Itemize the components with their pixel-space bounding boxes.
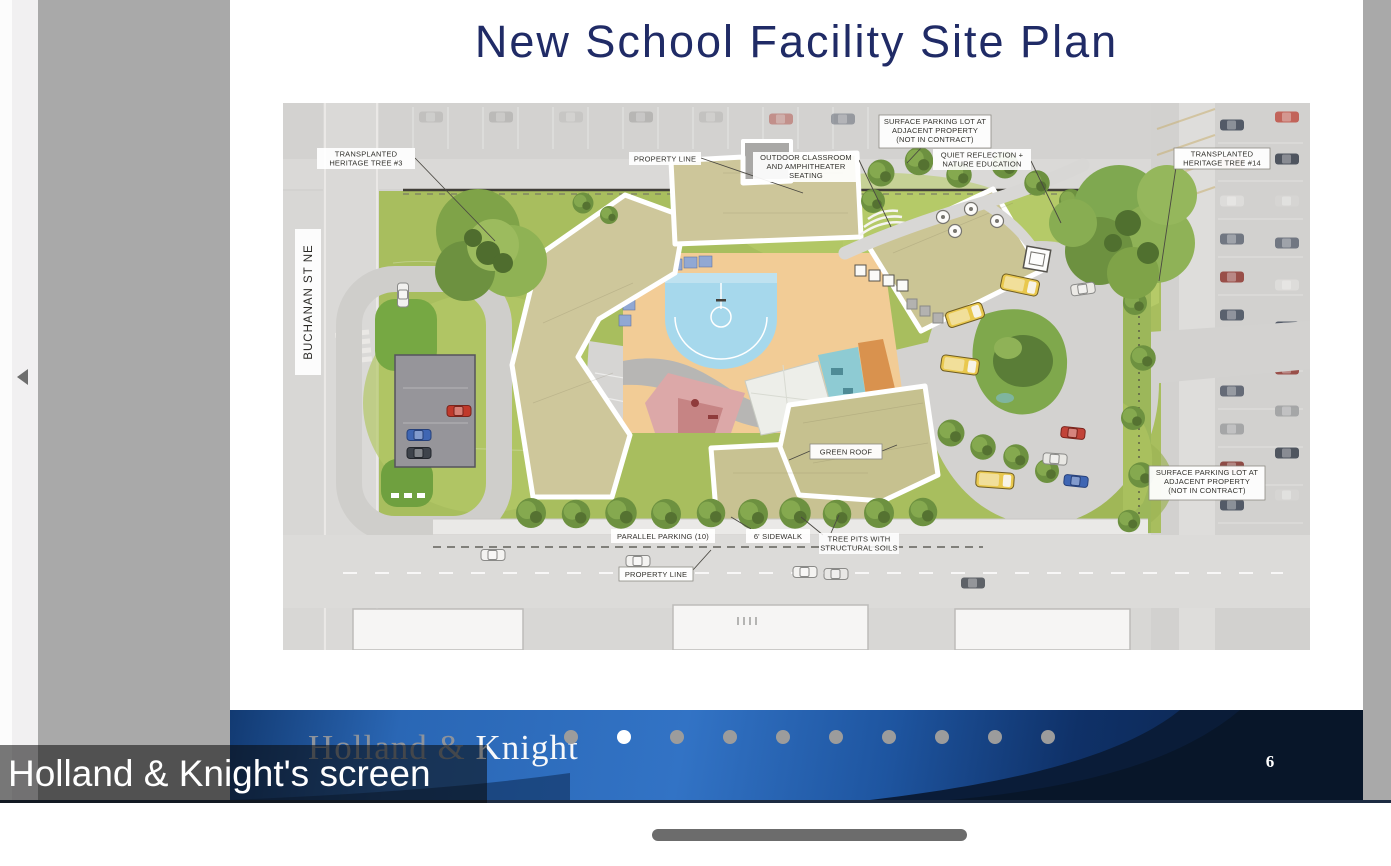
pagination-dot-8[interactable] xyxy=(935,730,949,744)
svg-text:AND AMPHITHEATER: AND AMPHITHEATER xyxy=(767,162,846,171)
pagination-dot-1[interactable] xyxy=(564,730,578,744)
pagination-dot-6[interactable] xyxy=(829,730,843,744)
screen-share-banner: Holland & Knight's screen xyxy=(0,745,487,803)
site-plan-drawing: TRANSPLANTED HERITAGE TREE #3 PROPERTY L… xyxy=(283,103,1310,650)
svg-text:PROPERTY LINE: PROPERTY LINE xyxy=(625,570,687,579)
presentation-viewer: New School Facility Site Plan xyxy=(0,0,1391,803)
label-surface-parking-right: SURFACE PARKING LOT AT ADJACENT PROPERTY… xyxy=(1149,466,1265,500)
pagination-dot-9[interactable] xyxy=(988,730,1002,744)
label-buchanan-st: BUCHANAN ST NE xyxy=(295,229,321,375)
svg-text:SEATING: SEATING xyxy=(789,171,823,180)
svg-text:ADJACENT PROPERTY: ADJACENT PROPERTY xyxy=(1164,477,1250,486)
pagination-dot-4[interactable] xyxy=(723,730,737,744)
svg-text:STRUCTURAL SOILS: STRUCTURAL SOILS xyxy=(820,544,898,553)
svg-text:OUTDOOR CLASSROOM: OUTDOOR CLASSROOM xyxy=(760,153,852,162)
collapse-panel-arrow-icon[interactable] xyxy=(17,369,28,385)
basketball-court xyxy=(665,273,777,369)
svg-text:(NOT IN CONTRACT): (NOT IN CONTRACT) xyxy=(1168,486,1246,495)
logo-text-white: Knight xyxy=(476,728,579,767)
svg-text:GREEN ROOF: GREEN ROOF xyxy=(820,448,873,457)
left-margin xyxy=(0,0,12,800)
side-panel-strip xyxy=(12,0,38,800)
svg-text:TRANSPLANTED: TRANSPLANTED xyxy=(1191,150,1254,159)
svg-text:TREE PITS WITH: TREE PITS WITH xyxy=(828,535,891,544)
svg-text:HERITAGE TREE #3: HERITAGE TREE #3 xyxy=(329,159,402,168)
svg-text:ADJACENT PROPERTY: ADJACENT PROPERTY xyxy=(892,126,978,135)
slide-title: New School Facility Site Plan xyxy=(230,16,1363,68)
adjacent-buildings-south xyxy=(353,605,1130,650)
page-number: 6 xyxy=(1240,752,1300,772)
svg-text:BUCHANAN ST NE: BUCHANAN ST NE xyxy=(303,244,315,359)
slide: New School Facility Site Plan xyxy=(230,0,1363,800)
svg-text:NATURE EDUCATION: NATURE EDUCATION xyxy=(942,160,1021,169)
pagination-dot-10[interactable] xyxy=(1041,730,1055,744)
svg-text:SURFACE PARKING LOT AT: SURFACE PARKING LOT AT xyxy=(884,117,987,126)
svg-text:SURFACE PARKING LOT AT: SURFACE PARKING LOT AT xyxy=(1156,468,1259,477)
svg-text:PARALLEL PARKING (10): PARALLEL PARKING (10) xyxy=(617,532,709,541)
site-plan-figure: TRANSPLANTED HERITAGE TREE #3 PROPERTY L… xyxy=(283,103,1310,650)
south-street xyxy=(283,535,1310,608)
pagination-dot-5[interactable] xyxy=(776,730,790,744)
pagination-dot-7[interactable] xyxy=(882,730,896,744)
svg-text:HERITAGE TREE #14: HERITAGE TREE #14 xyxy=(1183,159,1261,168)
svg-text:TRANSPLANTED: TRANSPLANTED xyxy=(335,150,398,159)
kiosk xyxy=(1023,246,1050,272)
bottom-drag-handle[interactable] xyxy=(652,829,967,841)
svg-text:PROPERTY LINE: PROPERTY LINE xyxy=(634,155,696,164)
pagination-dot-2-active[interactable] xyxy=(617,730,631,744)
svg-text:6' SIDEWALK: 6' SIDEWALK xyxy=(754,532,802,541)
svg-text:(NOT IN CONTRACT): (NOT IN CONTRACT) xyxy=(896,135,974,144)
label-parallel-parking: PARALLEL PARKING (10) xyxy=(611,529,715,543)
svg-text:QUIET REFLECTION +: QUIET REFLECTION + xyxy=(941,151,1024,160)
pagination-dot-3[interactable] xyxy=(670,730,684,744)
